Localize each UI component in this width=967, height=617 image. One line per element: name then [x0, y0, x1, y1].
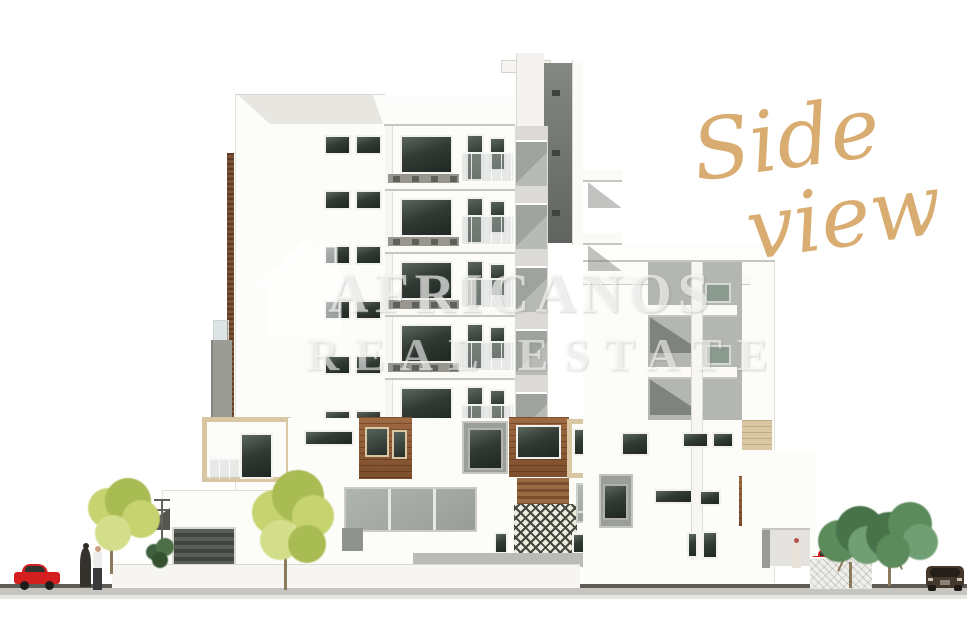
- balcony-railing: [461, 215, 513, 244]
- car-wheel: [954, 585, 962, 591]
- mashrabiya-screen: [514, 504, 577, 557]
- window: [392, 430, 407, 459]
- window: [324, 355, 351, 375]
- gray-bay: [599, 474, 633, 528]
- person: [792, 538, 801, 568]
- window: [682, 432, 709, 448]
- basement-window: [702, 531, 718, 559]
- large-window: [400, 198, 453, 237]
- road-edge: [0, 595, 967, 599]
- gray-panel: [462, 421, 508, 474]
- gray-column: [211, 340, 232, 418]
- window: [468, 428, 503, 470]
- balcony-railing: [461, 278, 513, 307]
- floor-slab: [385, 246, 515, 254]
- window-row: [324, 300, 386, 320]
- window: [355, 355, 382, 375]
- side-balcony-slab: [583, 233, 622, 245]
- window: [516, 425, 561, 459]
- balcony-railing: [209, 458, 239, 479]
- floor-slab: [385, 309, 515, 317]
- wood-box: [509, 417, 569, 477]
- stair-tower: [516, 53, 544, 130]
- tree-light-green: [80, 474, 160, 574]
- window-row: [324, 245, 386, 265]
- red-car: [14, 560, 62, 590]
- recessed-balcony: [516, 329, 547, 375]
- window: [355, 245, 382, 265]
- large-window: [400, 324, 453, 363]
- wing-pilaster: [691, 262, 703, 560]
- large-window: [400, 135, 453, 174]
- window: [324, 190, 351, 210]
- large-window: [400, 261, 453, 300]
- window-row: [324, 135, 386, 155]
- tower-edge-strip: [572, 60, 583, 245]
- car-wheel: [20, 581, 29, 590]
- window: [621, 432, 649, 456]
- floor-slab: [385, 372, 515, 380]
- door-shadow: [762, 530, 770, 568]
- basement-window: [494, 532, 508, 554]
- window: [712, 432, 734, 448]
- strip-window: [304, 430, 354, 446]
- car-light: [957, 578, 962, 581]
- storefront-window: [344, 487, 477, 532]
- window: [699, 490, 721, 506]
- window: [365, 427, 389, 457]
- architectural-rendering: AFRICANOS REAL ESTATE Side view: [0, 0, 967, 617]
- recessed-balcony: [516, 266, 547, 312]
- wood-slat-panel: [517, 478, 569, 505]
- garage-door: [172, 527, 236, 567]
- window: [355, 300, 382, 320]
- tower-roof-band: [384, 97, 515, 126]
- side-view-label: Side view: [688, 90, 908, 260]
- window-row: [324, 355, 386, 375]
- balcony-shadow: [588, 182, 622, 208]
- balcony-railing: [461, 152, 513, 181]
- vent-slit: [552, 150, 560, 156]
- window: [355, 135, 382, 155]
- floor-slab: [385, 183, 515, 191]
- window: [355, 190, 382, 210]
- tower-dark-face: [544, 63, 572, 243]
- recessed-balcony: [516, 140, 547, 186]
- window: [324, 135, 351, 155]
- tower-floor: [385, 254, 515, 317]
- person-body: [792, 543, 801, 568]
- window: [324, 245, 351, 265]
- window: [654, 489, 693, 504]
- vent-slit: [552, 210, 560, 216]
- tower-floor: [385, 128, 515, 191]
- window: [603, 484, 628, 520]
- wing-balcony-window: [705, 283, 731, 303]
- recessed-balcony: [516, 203, 547, 249]
- balcony-shadow: [588, 245, 622, 271]
- window-row: [324, 190, 386, 210]
- tower-floor: [385, 317, 515, 380]
- side-balcony-slab: [583, 170, 622, 182]
- car-wheel: [45, 581, 54, 590]
- tree-light-green: [240, 466, 335, 591]
- wing-balcony-window: [705, 345, 731, 365]
- basement-window: [687, 532, 698, 558]
- planter-box: [342, 528, 363, 551]
- window: [324, 300, 351, 320]
- glass-panel: [213, 320, 229, 342]
- tower-floor: [385, 191, 515, 254]
- boundary-wall: [112, 564, 580, 588]
- tree-dark-green: [862, 498, 942, 590]
- entrance-doorway: [762, 528, 810, 566]
- vent-slit: [552, 90, 560, 96]
- wood-panel: [359, 417, 412, 479]
- balcony-railing: [461, 341, 513, 370]
